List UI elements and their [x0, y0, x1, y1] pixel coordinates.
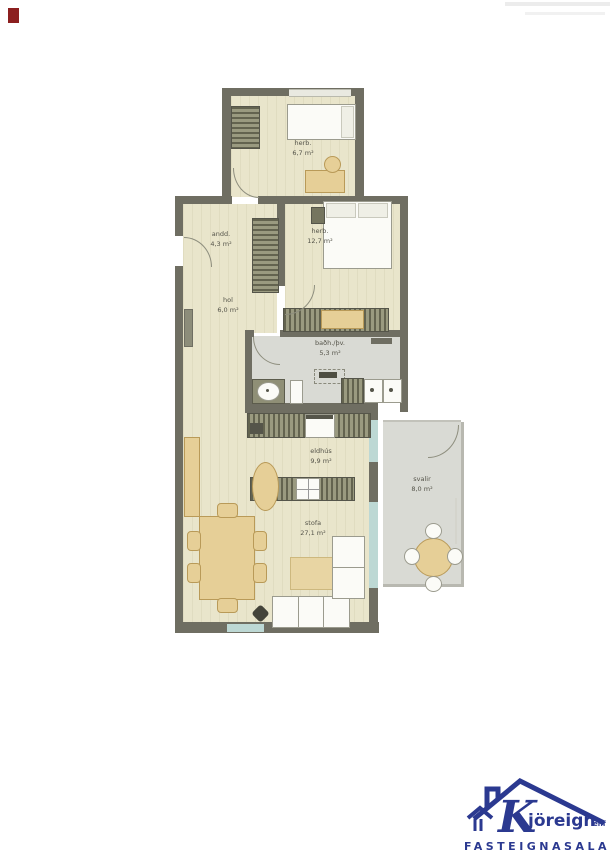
room-label-hol: hol 6,0 m²	[205, 295, 251, 315]
pillow	[341, 106, 354, 138]
closet-anddyri	[252, 218, 279, 293]
fixture-label-mark	[319, 372, 337, 378]
dining-chair	[253, 531, 267, 551]
scan-artifact-smudge	[505, 2, 610, 6]
wall-left-lower	[175, 266, 183, 633]
dining-chair	[217, 503, 238, 518]
balcony-rail-mark	[455, 498, 457, 544]
dryer-dial	[389, 388, 393, 392]
floor-plan-page: herb. 6,7 m² andd. 4,3 m² herb. 12,7 m² …	[0, 0, 614, 867]
radiator-hol	[184, 309, 193, 347]
room-label-eldhus: eldhús 9,9 m²	[298, 446, 344, 466]
kitchen-oval-table	[252, 462, 279, 511]
washing-machine-dial	[370, 388, 374, 392]
wardrobe-herb-small	[231, 106, 260, 149]
room-label-badherbergi: baðh./þv. 5,3 m²	[300, 338, 360, 358]
bath-cabinet	[341, 378, 364, 404]
room-label-svefnherbergi: herb. 12,7 m²	[295, 226, 345, 246]
tall-cabinet	[184, 437, 200, 517]
balcony-chair	[425, 523, 442, 539]
dining-table	[199, 516, 255, 600]
stool-herb-small	[324, 156, 341, 173]
wall-herb-left	[222, 88, 231, 204]
wall-herb-right	[355, 88, 364, 204]
balcony-chair	[404, 548, 420, 565]
wall-left-upper	[175, 196, 183, 236]
kitchen-sink-small	[250, 423, 263, 434]
window-herb-top	[289, 89, 351, 97]
dining-chair	[253, 563, 267, 583]
island-sink	[296, 478, 320, 500]
logo-tagline: FASTEIGNASALA	[462, 840, 612, 853]
balcony-chair	[447, 548, 463, 565]
dining-chair	[187, 531, 201, 551]
pillow	[326, 203, 356, 218]
pillow	[358, 203, 388, 218]
glass-stofa-window	[369, 502, 378, 588]
scan-artifact-red-mark	[8, 8, 19, 23]
wall-bad-top-a	[245, 330, 254, 337]
desk-herb-small	[305, 170, 345, 193]
balcony-railing-top	[383, 420, 461, 422]
toilet-drain	[266, 389, 269, 392]
window-bottom	[227, 624, 264, 632]
logo-brand-text: jöreign	[527, 811, 596, 831]
dining-chair	[217, 598, 238, 613]
sofa-bottom	[272, 596, 350, 628]
room-label-herb-small: herb. 6,7 m²	[280, 138, 326, 158]
wall-bad-left	[245, 330, 252, 412]
sofa-right	[332, 536, 365, 599]
vent-mark	[371, 338, 392, 344]
balcony-railing-right	[461, 422, 464, 587]
stove-back-edge	[306, 415, 333, 419]
balcony-chair	[425, 576, 442, 592]
bench-svefnherbergi	[321, 310, 364, 329]
scan-artifact-smudge	[525, 12, 605, 15]
logo-suffix: ehf	[593, 820, 607, 828]
wall-eldhus-top	[245, 403, 378, 413]
balcony-railing-bottom	[383, 584, 464, 587]
dining-chair	[187, 563, 201, 583]
logo-house-icon: K jöreign ehf	[462, 772, 612, 838]
room-label-stofa: stofa 27,1 m²	[288, 518, 338, 538]
sink-pedestal	[290, 380, 303, 404]
agency-logo: K jöreign ehf FASTEIGNASALA	[462, 772, 612, 864]
wall-top-a	[175, 196, 232, 204]
room-label-anddyri: andd. 4,3 m²	[198, 229, 244, 249]
room-label-svalir: svalir 8,0 m²	[399, 474, 445, 494]
rug	[290, 557, 336, 590]
nightstand	[311, 207, 325, 224]
